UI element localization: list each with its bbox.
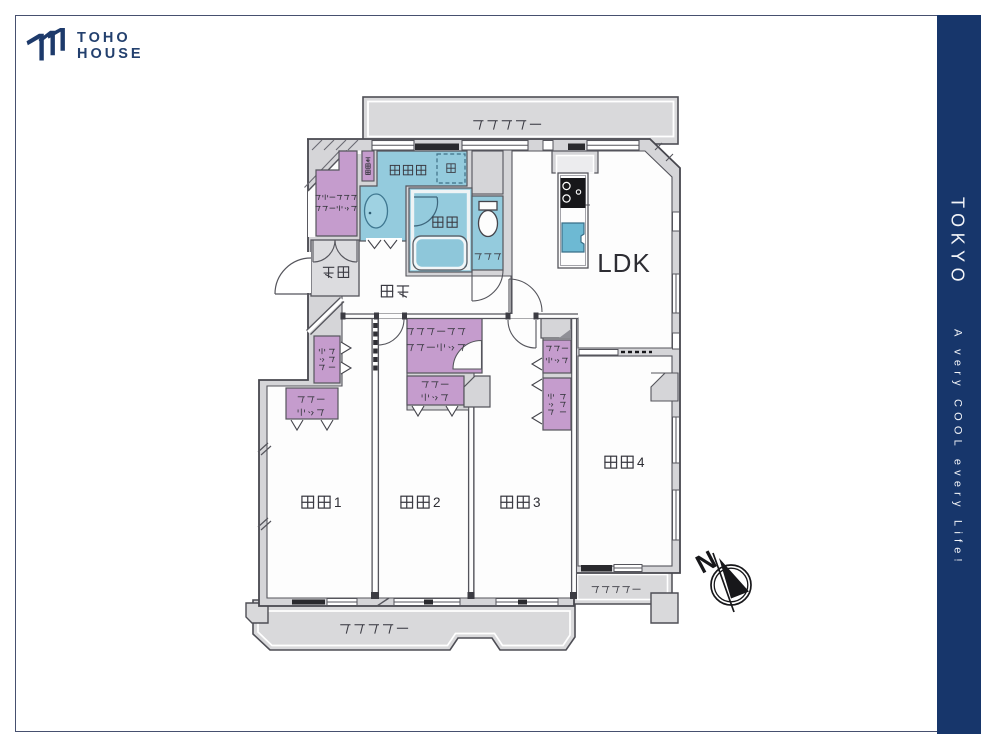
svg-text:LDK: LDK <box>597 248 651 278</box>
svg-text:4: 4 <box>637 455 645 470</box>
svg-text:2: 2 <box>433 495 441 510</box>
svg-text:3: 3 <box>533 495 541 510</box>
svg-text:1: 1 <box>334 495 342 510</box>
